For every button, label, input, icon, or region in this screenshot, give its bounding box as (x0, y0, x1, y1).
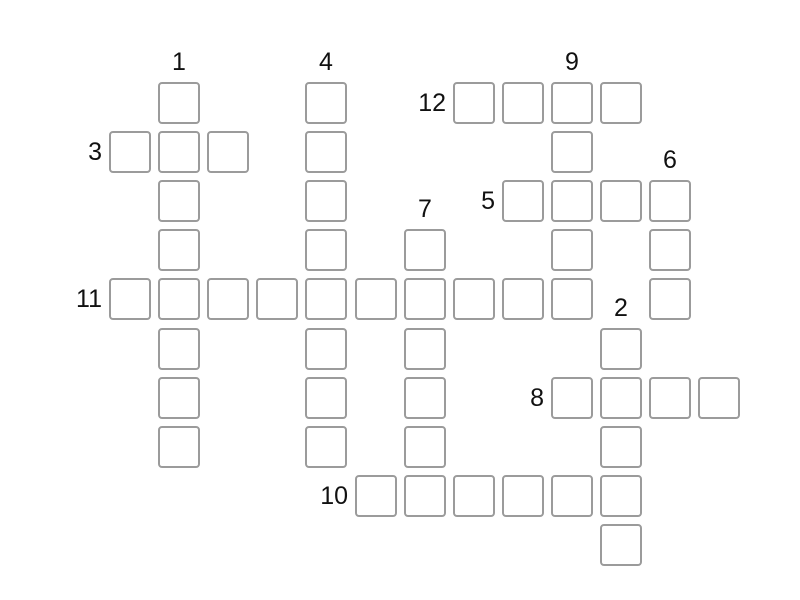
crossword-cell[interactable] (453, 475, 495, 517)
crossword-cell[interactable] (158, 426, 200, 468)
clue-number-9: 9 (551, 46, 593, 78)
crossword-cell[interactable] (600, 82, 642, 124)
crossword-cell[interactable] (305, 328, 347, 370)
crossword-cell[interactable] (600, 426, 642, 468)
crossword-cell[interactable] (551, 180, 593, 222)
crossword-cell[interactable] (502, 180, 544, 222)
crossword-cell[interactable] (502, 278, 544, 320)
crossword-cell[interactable] (502, 475, 544, 517)
crossword-cell[interactable] (453, 278, 495, 320)
clue-number-8: 8 (464, 382, 544, 414)
clue-number-6: 6 (649, 144, 691, 176)
crossword-cell[interactable] (600, 475, 642, 517)
clue-number-11: 11 (22, 283, 102, 315)
crossword-cell[interactable] (600, 524, 642, 566)
crossword-board: 123456789101112 (0, 0, 800, 600)
crossword-cell[interactable] (109, 278, 151, 320)
crossword-cell[interactable] (453, 82, 495, 124)
crossword-cell[interactable] (305, 278, 347, 320)
crossword-cell[interactable] (600, 328, 642, 370)
crossword-cell[interactable] (305, 131, 347, 173)
clue-number-2: 2 (600, 292, 642, 324)
crossword-cell[interactable] (502, 82, 544, 124)
crossword-cell[interactable] (207, 278, 249, 320)
crossword-cell[interactable] (256, 278, 298, 320)
crossword-cell[interactable] (551, 229, 593, 271)
crossword-cell[interactable] (404, 229, 446, 271)
crossword-cell[interactable] (355, 475, 397, 517)
crossword-cell[interactable] (158, 377, 200, 419)
crossword-cell[interactable] (551, 82, 593, 124)
crossword-cell[interactable] (698, 377, 740, 419)
clue-number-1: 1 (158, 46, 200, 78)
clue-number-7: 7 (404, 193, 446, 225)
crossword-cell[interactable] (305, 229, 347, 271)
crossword-cell[interactable] (158, 180, 200, 222)
clue-number-10: 10 (268, 480, 348, 512)
crossword-cell[interactable] (355, 278, 397, 320)
crossword-cell[interactable] (109, 131, 151, 173)
crossword-cell[interactable] (207, 131, 249, 173)
clue-number-3: 3 (22, 136, 102, 168)
crossword-cell[interactable] (305, 180, 347, 222)
crossword-cell[interactable] (551, 278, 593, 320)
crossword-cell[interactable] (404, 328, 446, 370)
crossword-cell[interactable] (158, 278, 200, 320)
crossword-cell[interactable] (551, 131, 593, 173)
crossword-cell[interactable] (158, 82, 200, 124)
crossword-cell[interactable] (404, 377, 446, 419)
crossword-cell[interactable] (404, 426, 446, 468)
clue-number-12: 12 (366, 87, 446, 119)
crossword-cell[interactable] (649, 229, 691, 271)
crossword-cell[interactable] (649, 180, 691, 222)
clue-number-4: 4 (305, 46, 347, 78)
crossword-cell[interactable] (158, 328, 200, 370)
crossword-cell[interactable] (600, 180, 642, 222)
crossword-cell[interactable] (305, 426, 347, 468)
crossword-cell[interactable] (649, 377, 691, 419)
crossword-cell[interactable] (404, 475, 446, 517)
crossword-cell[interactable] (649, 278, 691, 320)
crossword-cell[interactable] (404, 278, 446, 320)
crossword-cell[interactable] (305, 377, 347, 419)
crossword-cell[interactable] (551, 377, 593, 419)
crossword-cell[interactable] (158, 131, 200, 173)
crossword-cell[interactable] (305, 82, 347, 124)
crossword-cell[interactable] (600, 377, 642, 419)
crossword-cell[interactable] (551, 475, 593, 517)
crossword-cell[interactable] (158, 229, 200, 271)
